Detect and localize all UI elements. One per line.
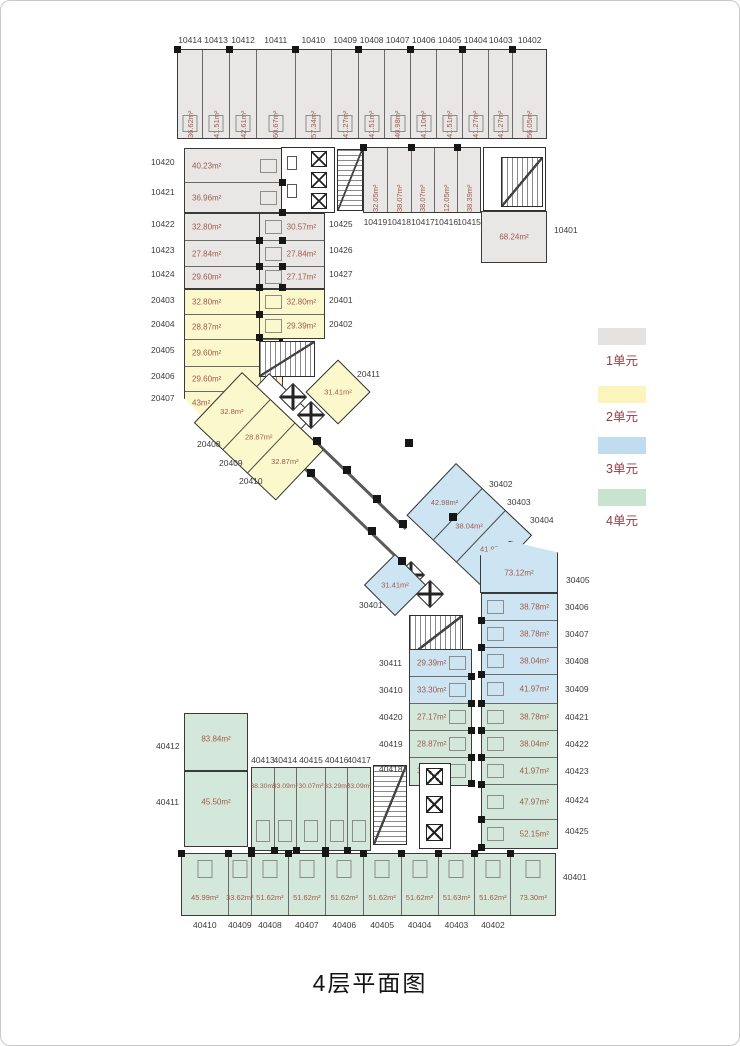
unit-area: 38.04m²: [520, 657, 549, 666]
unit-area: 32.8m²: [221, 407, 244, 416]
unit-cell: 38.04m²: [482, 648, 557, 675]
unit-area: 41.97m²: [520, 767, 549, 776]
unit-area: 33.29m²: [324, 783, 349, 790]
unit-number: 20406: [151, 371, 175, 381]
unit-area: 29.60m²: [192, 273, 221, 282]
unit-cell: 47.97m²: [482, 785, 557, 820]
unit-area: 41.27m²: [341, 59, 350, 138]
unit-area: 28.87m²: [192, 323, 221, 332]
unit-cell: 38.78m²: [482, 621, 557, 648]
mid-right-stack: 38.78m² 38.78m² 38.04m² 41.97m² 38.78m² …: [481, 593, 558, 849]
unit-number: 10419: [364, 217, 388, 227]
unit-number: 10416: [434, 217, 458, 227]
unit-area: 68.24m²: [499, 233, 528, 242]
unit-number: 10404: [464, 35, 488, 45]
unit-area: 31.41m²: [324, 388, 352, 397]
unit-area: 28.87m²: [417, 740, 446, 749]
unit-number: 40414: [273, 755, 297, 765]
unit-cell: 29.39m²: [260, 315, 324, 337]
unit-cell: 1041160.67m²: [257, 50, 296, 138]
unit-area: 29.60m²: [192, 349, 221, 358]
unit-area: 30.07m²: [299, 783, 324, 790]
floor-title: 4层平面图: [1, 964, 739, 998]
unit-area: 43m²: [192, 398, 210, 407]
unit-area: 51.62m²: [330, 893, 358, 902]
unit-cell: 41.97m²: [482, 758, 557, 785]
unit-area: 51.62m²: [256, 893, 284, 902]
corridor-line: [315, 441, 407, 530]
unit-number: 30406: [565, 602, 589, 612]
unit-cell: 38.04m²: [482, 731, 557, 758]
unit-number: 20407: [151, 393, 175, 403]
unit-cell: 51.62m²40405: [364, 854, 402, 915]
unit-cell: 38.07m²10417: [412, 148, 436, 212]
unit-area: 28.87m²: [245, 432, 273, 441]
unit-number: 10424: [151, 269, 175, 279]
unit-number: 10407: [386, 35, 410, 45]
shaft-room: [287, 156, 297, 170]
unit-number: 40416: [325, 755, 349, 765]
unit-number: 30410: [379, 685, 403, 695]
unit-number: 20411: [357, 369, 380, 379]
unit-cell: 51.62m²40406: [326, 854, 364, 915]
unit-number: 40422: [565, 739, 589, 749]
unit-number: 40418: [379, 764, 403, 774]
unit-cell: 1040941.27m²: [332, 50, 359, 138]
unit-number: 30402: [489, 479, 513, 489]
unit-area: 32.05m²: [371, 154, 380, 212]
unit-area: 38.04m²: [456, 521, 484, 530]
unit-cell: 41.97m²: [482, 675, 557, 704]
legend-label-unit4: 4单元: [598, 510, 646, 529]
elevator-icon: [426, 796, 443, 813]
elevator-icon: [311, 172, 327, 188]
unit-cell: 1041242.61m²: [230, 50, 257, 138]
unit-number: 40407: [295, 920, 319, 930]
unit-number: 10422: [151, 219, 175, 229]
unit-number: 10406: [412, 35, 436, 45]
stairs-icon: [373, 765, 407, 845]
unit-number: 40401: [563, 872, 587, 882]
unit-area: 60.67m²: [271, 59, 280, 138]
unit-area: 27.84m²: [287, 249, 316, 258]
stairs-icon: [501, 157, 543, 207]
unit-cell: 33.62m²40409: [229, 854, 252, 915]
column-marker: [405, 439, 413, 447]
unit-number: 10427: [329, 269, 353, 279]
unit-number: 30401: [359, 600, 383, 610]
unit-area: 27.17m²: [287, 273, 316, 282]
unit-cell: 1040256.05m²: [513, 50, 546, 138]
unit1-row2-right-strip: 32.05m²10419 38.07m²10418 38.07m²10417 1…: [363, 147, 481, 213]
unit1-mid-column: 30.57m² 27.84m² 27.17m²: [259, 213, 325, 289]
unit-area: 40.23m²: [192, 161, 221, 170]
column-marker: [313, 437, 321, 445]
unit-area: 38.07m²: [395, 154, 404, 212]
unit-number: 40406: [332, 920, 356, 930]
column-marker: [373, 495, 381, 503]
unit-area: 36.62m²: [186, 59, 195, 138]
unit-area: 38.78m²: [520, 630, 549, 639]
unit4-mid-strip: 4041338.30m² 4041433.09m² 4041530.07m² 4…: [251, 767, 371, 851]
unit-number: 10403: [489, 35, 513, 45]
unit-area: 40.98m²: [393, 59, 402, 138]
unit-cell: 4041733.09m²: [348, 768, 370, 850]
column-marker: [368, 527, 376, 535]
unit-number: 40403: [445, 920, 469, 930]
column-marker: [398, 557, 406, 565]
unit-cell: 1040341.27m²: [489, 50, 513, 138]
unit-cell: 51.62m²40408: [252, 854, 289, 915]
unit-number: 20405: [151, 345, 175, 355]
unit-cell: 27.17m²: [260, 267, 324, 287]
unit-area: 45.50m²: [201, 797, 230, 806]
unit-cell: 1040541.51m²: [437, 50, 463, 138]
unit-cell: 33.30m²: [410, 677, 471, 704]
unit-number: 10412: [231, 35, 255, 45]
unit-number: 40415: [299, 755, 323, 765]
legend-swatch-unit2: [598, 386, 646, 403]
unit-cell: 51.62m²40407: [289, 854, 326, 915]
unit-area: 32.87m²: [272, 457, 300, 466]
unit1-row2-left-block: 40.23m² 36.96m²: [184, 148, 283, 213]
unit-number: 30405: [566, 575, 590, 585]
unit-cell: 4041338.30m²: [252, 768, 275, 850]
unit-area: 51.63m²: [443, 893, 471, 902]
elevator-icon: [311, 151, 327, 167]
unit-area: 27.84m²: [192, 249, 221, 258]
unit-cell: 29.39m²: [410, 650, 471, 677]
unit-area: 38.78m²: [520, 603, 549, 612]
unit-area: 38.07m²: [418, 154, 427, 212]
legend-label-unit3: 3单元: [598, 458, 646, 477]
unit-area: 83.84m²: [201, 735, 230, 744]
unit-cell: 51.63m²40403: [439, 854, 476, 915]
unit-number: 10414: [178, 35, 202, 45]
unit-area: 73.12m²: [504, 569, 533, 578]
unit-cell: 38.07m²10418: [388, 148, 412, 212]
unit-cell: 1040740.98m²: [385, 50, 411, 138]
unit-number: 10401: [554, 225, 578, 235]
elevator-icon: [426, 768, 443, 785]
unit-number: 20402: [329, 319, 353, 329]
unit-area: 51.62m²: [479, 893, 507, 902]
unit-area: 57.34m²: [309, 59, 318, 138]
unit-area: 51.62m²: [406, 893, 434, 902]
unit-area: 45.99m²: [191, 893, 219, 902]
unit-number: 40425: [565, 826, 589, 836]
unit-number: 30404: [530, 515, 554, 525]
unit-cell: 1040641.10m²: [411, 50, 437, 138]
unit-cell: 1041057.34m²: [296, 50, 333, 138]
unit-number: 40405: [370, 920, 394, 930]
unit-area: 36.96m²: [192, 193, 221, 202]
unit-number: 40413: [251, 755, 275, 765]
unit-number: 40419: [379, 739, 403, 749]
unit-cell: 1040441.27m²: [463, 50, 489, 138]
unit-number: 10409: [333, 35, 357, 45]
unit-number: 20410: [239, 476, 263, 486]
unit-area: 51.62m²: [368, 893, 396, 902]
unit-cell: 1041341.51m²: [203, 50, 230, 138]
unit-number: 10413: [204, 35, 228, 45]
column-marker: [343, 466, 351, 474]
unit-cell: 36.96m²: [185, 183, 282, 212]
unit-number: 10417: [411, 217, 435, 227]
unit-area: 42.61m²: [239, 59, 248, 138]
unit-area: 41.51m²: [445, 59, 454, 138]
unit-area: 41.10m²: [419, 59, 428, 138]
stairs-icon: [259, 341, 315, 377]
unit-area: 31.41m²: [381, 581, 409, 590]
unit-10401: 68.24m²: [481, 211, 547, 263]
unit-cell: 1040841.51m²: [359, 50, 385, 138]
unit2-mid-column: 32.80m² 29.39m²: [259, 289, 325, 339]
stairs-icon: [337, 149, 363, 211]
unit-40411: 45.50m²: [184, 771, 248, 847]
unit-number: 40409: [228, 920, 252, 930]
shaft-room: [287, 184, 297, 198]
floorplan-canvas: 1041436.62m² 1041341.51m² 1041242.61m² 1…: [0, 0, 740, 1046]
unit-cell: 38.78m²: [482, 704, 557, 731]
unit4-bottom-strip: 45.99m²40410 33.62m²40409 51.62m²40408 5…: [181, 853, 556, 916]
unit-number: 40423: [565, 766, 589, 776]
column-marker: [449, 513, 457, 521]
unit-number: 40420: [379, 712, 403, 722]
unit-area: 73.30m²: [519, 893, 547, 902]
unit-number: 20401: [329, 295, 353, 305]
unit-number: 20403: [151, 295, 175, 305]
unit-area: 29.60m²: [192, 375, 221, 384]
unit-area: 52.15m²: [520, 829, 549, 838]
unit-number: 10425: [329, 219, 353, 229]
unit-number: 40402: [481, 920, 505, 930]
legend-swatch-unit3: [598, 437, 646, 454]
unit-cell: 27.17m²: [410, 704, 471, 731]
unit-area: 33.09m²: [347, 783, 372, 790]
unit-number: 10415: [457, 217, 481, 227]
unit-number: 40421: [565, 712, 589, 722]
unit-area: 29.39m²: [287, 322, 316, 331]
unit-number: 20404: [151, 319, 175, 329]
unit-number: 40424: [565, 795, 589, 805]
unit-number: 40411: [156, 797, 179, 807]
unit-area: 51.62m²: [293, 893, 321, 902]
unit-area: 41.27m²: [471, 59, 480, 138]
legend-label-unit1: 1单元: [598, 350, 646, 369]
unit-number: 30409: [565, 684, 589, 694]
unit-area: 12.05m²: [442, 154, 451, 212]
unit-cell: 28.87m²: [410, 731, 471, 758]
unit-number: 10421: [151, 187, 175, 197]
unit-number: 20409: [219, 458, 243, 468]
unit-cell: 51.62m²40402: [475, 854, 511, 915]
unit-area: 47.97m²: [520, 798, 549, 807]
unit-cell: 32.05m²10419: [364, 148, 388, 212]
unit-number: 30403: [507, 497, 531, 507]
unit-number: 10408: [360, 35, 384, 45]
unit-area: 33.30m²: [417, 686, 446, 695]
unit-area: 32.80m²: [192, 223, 221, 232]
unit-area: 32.80m²: [287, 298, 316, 307]
column-marker: [399, 520, 407, 528]
legend-swatch-unit4: [598, 489, 646, 506]
unit-area: 38.04m²: [520, 740, 549, 749]
unit-cell: 4041530.07m²: [297, 768, 327, 850]
unit-area: 41.51m²: [367, 59, 376, 138]
unit-area: 38.39m²: [465, 154, 474, 212]
unit-number: 40410: [193, 920, 217, 930]
unit-area: 33.09m²: [273, 783, 298, 790]
unit-cell: 4041433.09m²: [275, 768, 297, 850]
unit-number: 10405: [438, 35, 462, 45]
unit-area: 41.27m²: [496, 59, 505, 138]
unit-cell: 52.15m²: [482, 820, 557, 847]
unit-area: 30.57m²: [287, 223, 316, 232]
unit-number: 10411: [264, 35, 287, 45]
unit-area: 42.98m²: [431, 497, 459, 506]
unit-number: 40404: [408, 920, 432, 930]
unit-cell: 73.30m²: [511, 854, 555, 915]
unit-cell: 27.84m²: [260, 241, 324, 267]
unit-cell: 51.62m²40404: [402, 854, 439, 915]
unit1-top-strip: 1041436.62m² 1041341.51m² 1041242.61m² 1…: [177, 49, 547, 139]
unit-number: 10418: [387, 217, 411, 227]
unit-cell: 12.05m²10416: [435, 148, 458, 212]
unit-number: 10402: [518, 35, 542, 45]
unit-number: 10426: [329, 245, 353, 255]
unit-number: 40408: [258, 920, 282, 930]
elevator-icon: [311, 193, 327, 209]
legend-label-unit2: 2单元: [598, 406, 646, 425]
elevator-icon: [426, 824, 443, 841]
unit-area: 29.39m²: [417, 659, 446, 668]
legend-swatch-unit1: [598, 328, 646, 345]
unit-number: 10420: [151, 157, 175, 167]
unit-number: 30407: [565, 629, 589, 639]
unit-40412: 83.84m²: [184, 713, 248, 771]
unit-cell: 40.23m²: [185, 149, 282, 183]
unit-area: 32.80m²: [192, 298, 221, 307]
unit-number: 10410: [302, 35, 326, 45]
unit-number: 40412: [156, 741, 180, 751]
unit-number: 40417: [347, 755, 371, 765]
unit-number: 30411: [379, 658, 402, 668]
unit-cell: 38.39m²10415: [458, 148, 480, 212]
unit-number: 10423: [151, 245, 175, 255]
unit-area: 38.30m²: [250, 783, 275, 790]
unit-area: 41.97m²: [520, 685, 549, 694]
unit-area: 33.62m²: [226, 893, 254, 902]
column-marker: [307, 469, 315, 477]
unit-cell: 30.57m²: [260, 214, 324, 241]
unit-area: 41.51m²: [212, 59, 221, 138]
unit-cell: 45.99m²40410: [182, 854, 229, 915]
unit-number: 20408: [197, 439, 221, 449]
unit-area: 27.17m²: [417, 713, 446, 722]
unit-cell: 38.78m²: [482, 594, 557, 621]
unit-area: 38.78m²: [520, 713, 549, 722]
unit-cell: 32.80m²: [260, 290, 324, 315]
unit-number: 30408: [565, 656, 589, 666]
unit-area: 56.05m²: [525, 59, 534, 138]
unit-cell: 1041436.62m²: [178, 50, 203, 138]
unit-cell: 4041633.29m²: [326, 768, 348, 850]
